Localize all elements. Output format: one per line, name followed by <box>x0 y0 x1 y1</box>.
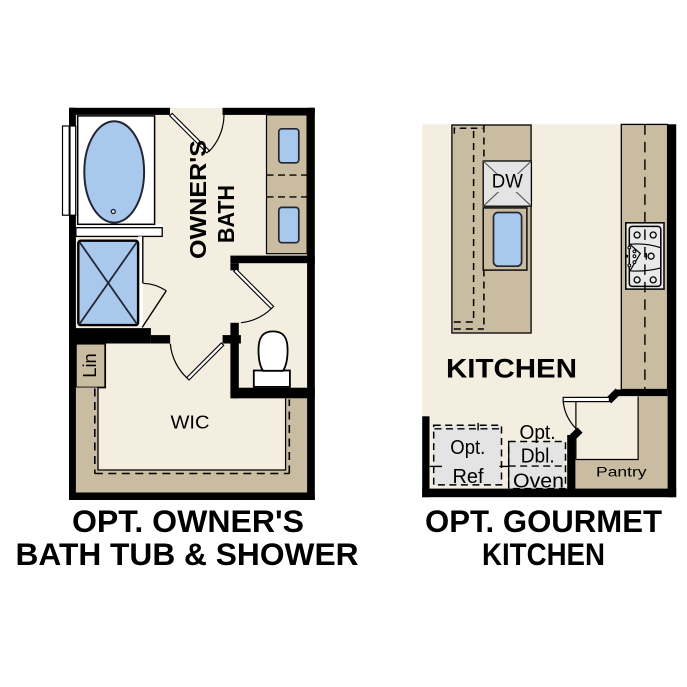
svg-text:Opt.: Opt. <box>520 422 556 444</box>
svg-text:OWNER'S: OWNER'S <box>185 140 211 259</box>
svg-text:Pantry: Pantry <box>596 464 647 479</box>
svg-text:KITCHEN: KITCHEN <box>482 536 605 572</box>
svg-text:OPT. GOURMET: OPT. GOURMET <box>425 503 662 539</box>
svg-text:OPT. OWNER'S: OPT. OWNER'S <box>72 503 304 539</box>
svg-text:WIC: WIC <box>171 412 210 433</box>
svg-text:Opt.: Opt. <box>450 437 485 459</box>
svg-text:Ref: Ref <box>453 466 484 488</box>
svg-text:KITCHEN: KITCHEN <box>446 354 577 384</box>
svg-text:Dbl.: Dbl. <box>521 445 555 467</box>
svg-text:DW: DW <box>492 172 523 193</box>
svg-text:BATH TUB & SHOWER: BATH TUB & SHOWER <box>16 536 359 572</box>
svg-text:BATH: BATH <box>213 185 239 243</box>
svg-text:Lin: Lin <box>80 353 100 378</box>
